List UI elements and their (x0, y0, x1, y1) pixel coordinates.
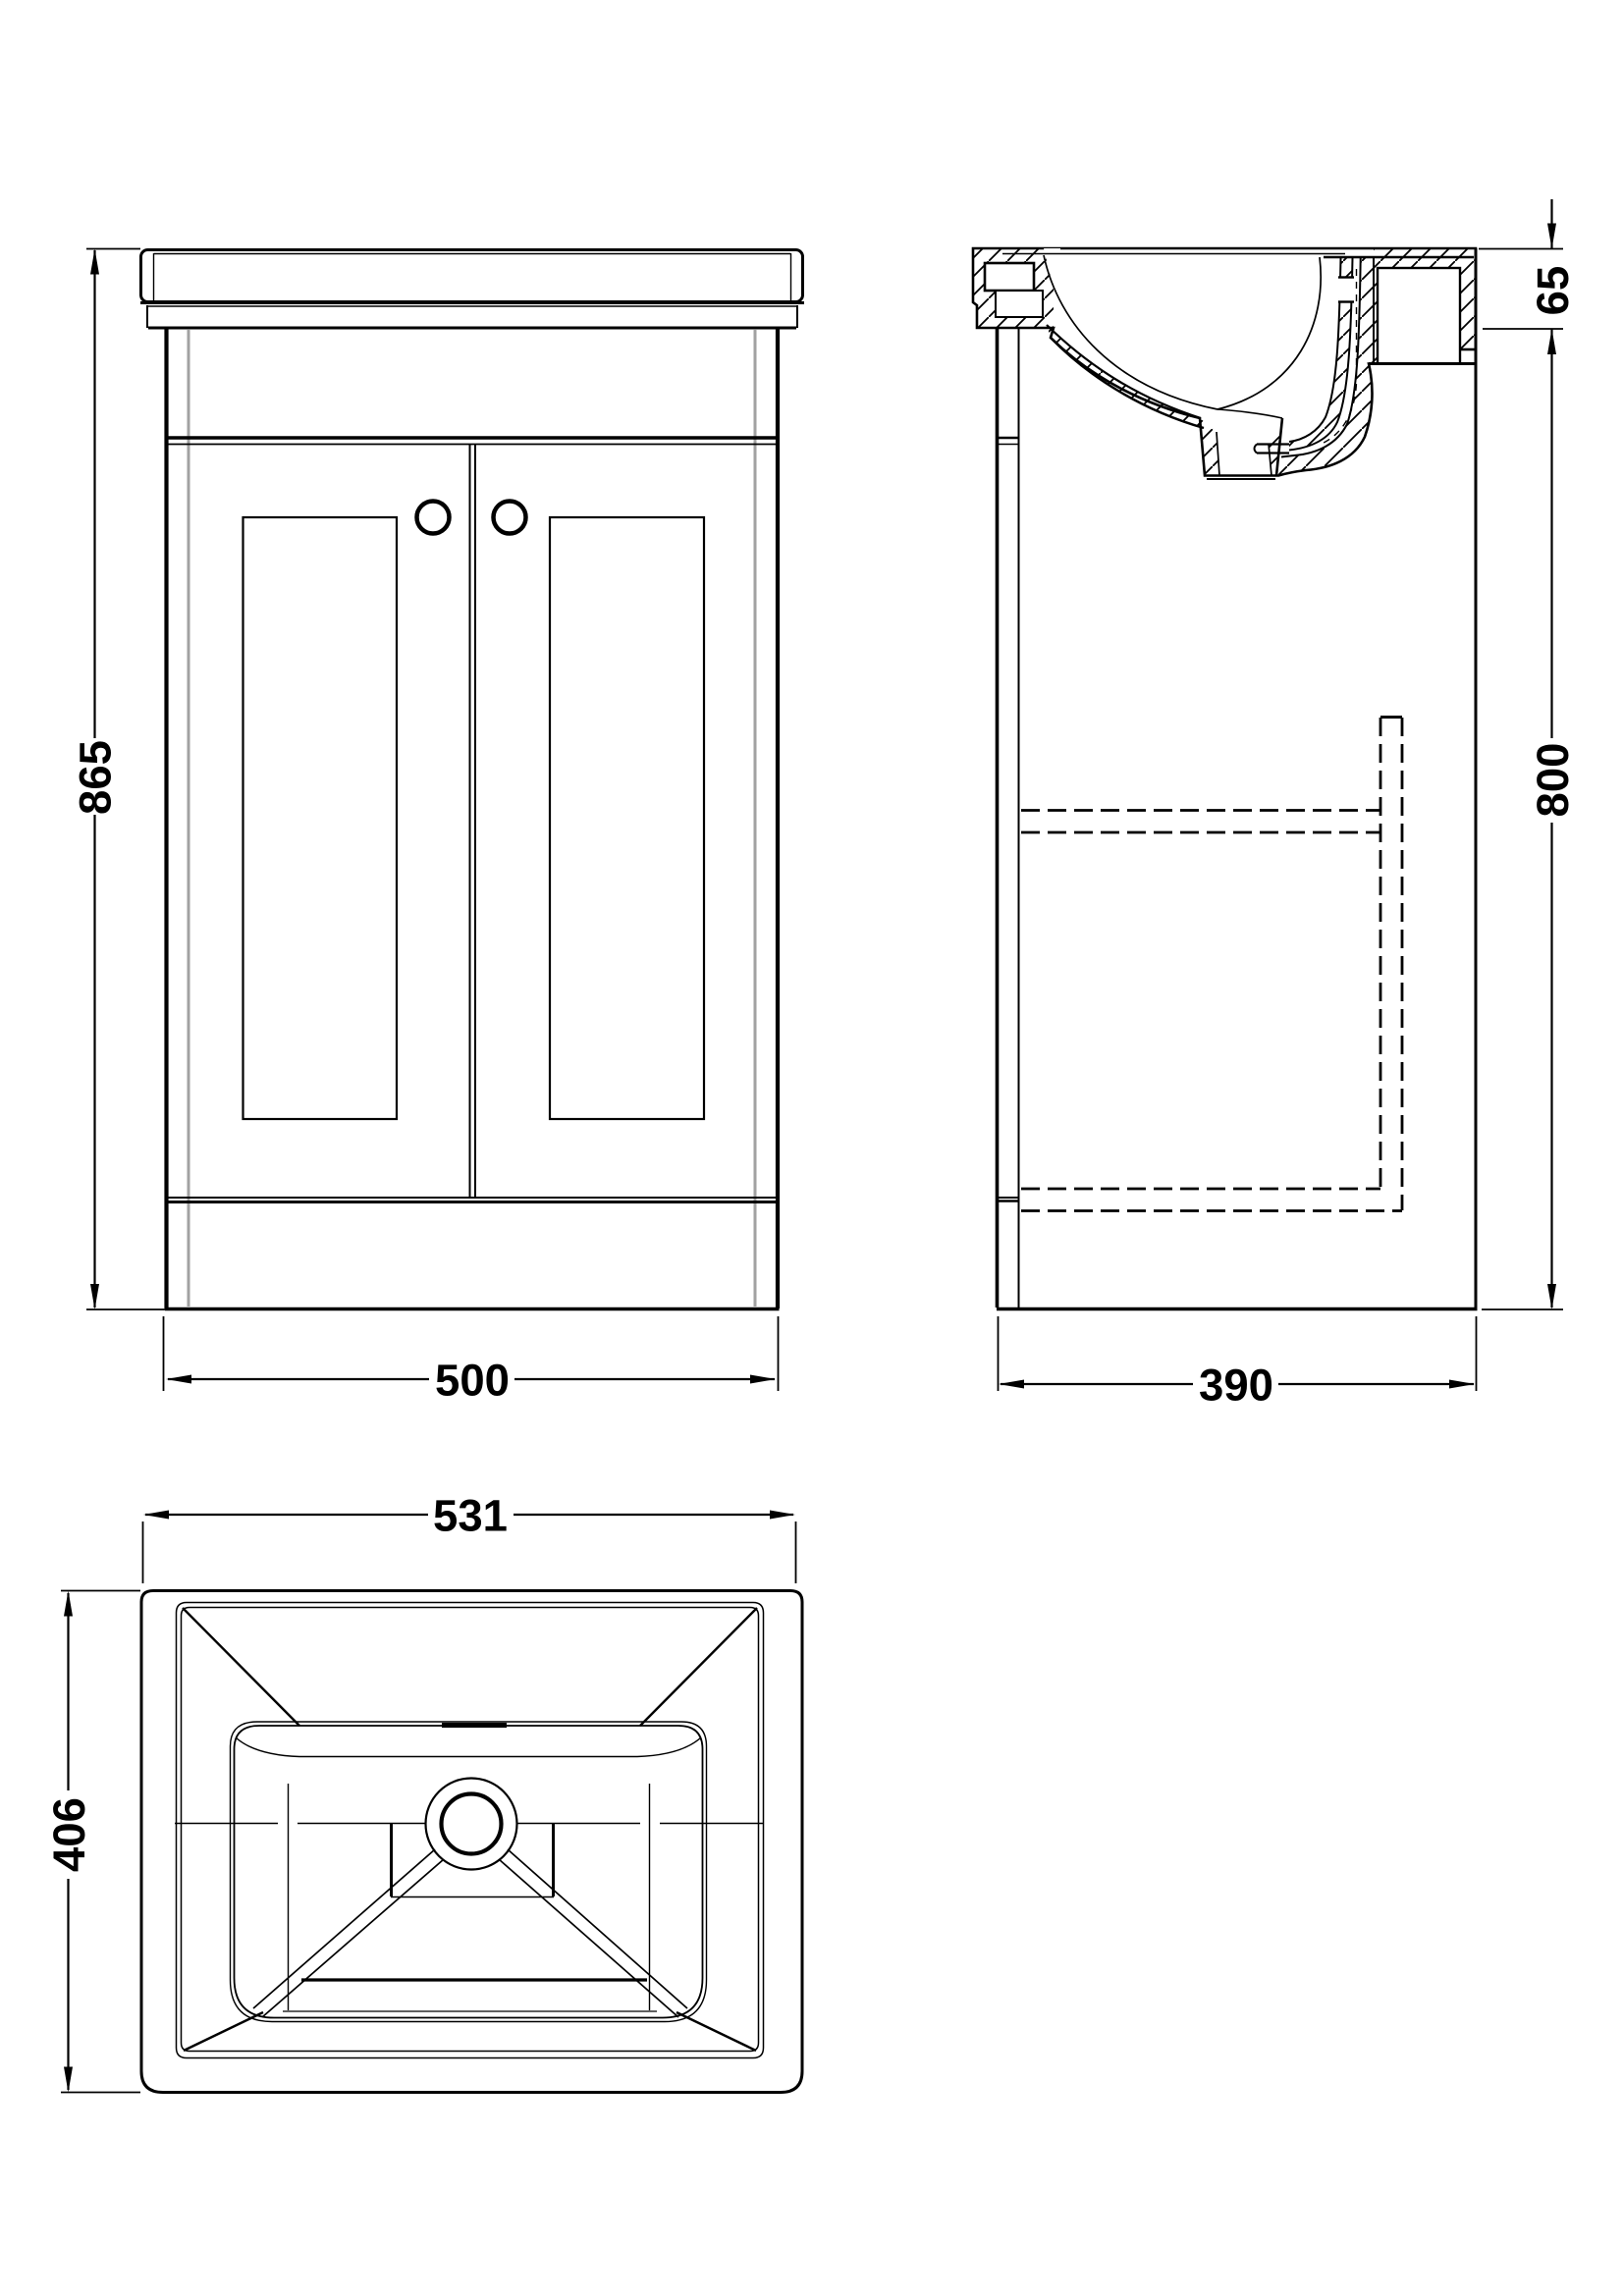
svg-text:800: 800 (1528, 743, 1578, 818)
svg-text:531: 531 (433, 1491, 508, 1541)
svg-text:406: 406 (44, 1797, 94, 1872)
svg-text:500: 500 (435, 1356, 510, 1406)
svg-text:390: 390 (1199, 1361, 1273, 1411)
svg-text:865: 865 (71, 740, 121, 815)
svg-text:65: 65 (1528, 266, 1578, 316)
